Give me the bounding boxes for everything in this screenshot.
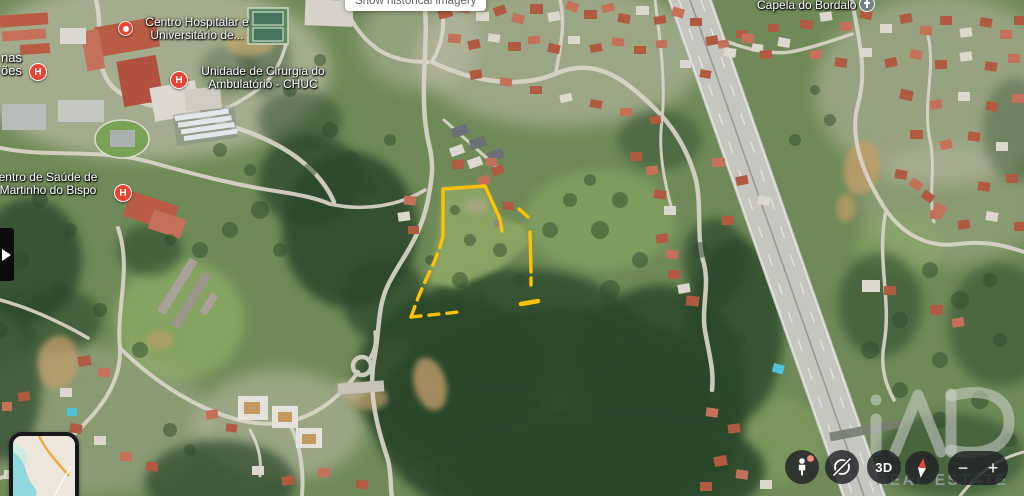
poi-label-unidade-cirurgia[interactable]: Unidade de Cirurgia do Ambulatório - CHU… — [196, 65, 330, 91]
poi-label-line: Ambulatório - CHUC — [196, 78, 330, 91]
poi-label-line: Universitário de... — [136, 29, 258, 42]
poi-label-line: Capela do Bordalo — [757, 0, 856, 12]
zoom-in-button[interactable]: + — [988, 459, 999, 477]
hospital-marker-icon[interactable]: H — [170, 71, 188, 89]
google-earth-viewport[interactable]: Show historical imagery nas ões H Centro… — [0, 0, 1024, 496]
place-dot-marker-icon[interactable] — [118, 21, 133, 36]
minimap-art — [13, 436, 75, 496]
poi-label-line: Martinho do Bispo — [0, 184, 106, 197]
3d-toggle-button[interactable]: 3D — [867, 450, 901, 484]
parking-lot — [58, 100, 104, 122]
crossed-circle-icon — [829, 454, 855, 480]
map-style-thumbnail[interactable] — [9, 432, 79, 496]
swimming-pool — [67, 408, 77, 416]
play-arrow-icon[interactable] — [0, 228, 14, 281]
poi-label-centro-hospitalar[interactable]: Centro Hospitalar e Universitário de... — [136, 16, 258, 42]
compass-button[interactable] — [905, 451, 939, 485]
zoom-out-button[interactable]: − — [958, 459, 969, 477]
pegman-icon — [789, 454, 815, 480]
zoom-control[interactable]: − + — [948, 451, 1008, 485]
compass-icon — [909, 455, 935, 481]
pegman-button[interactable] — [785, 450, 819, 484]
poi-label-pools[interactable]: nas ões — [1, 51, 22, 77]
hospital-marker-icon[interactable]: H — [114, 184, 132, 202]
historical-imagery-tooltip: Show historical imagery — [345, 0, 486, 11]
poi-label-line: ões — [1, 64, 22, 77]
poi-label-centro-saude[interactable]: entro de Saúde de Martinho do Bispo — [0, 171, 106, 197]
pegman-notification-dot — [807, 455, 814, 462]
clean-map-toggle-button[interactable] — [825, 450, 859, 484]
poi-label-capela[interactable]: Capela do Bordalo — [757, 0, 856, 12]
hospital-marker-icon[interactable]: H — [29, 63, 47, 81]
